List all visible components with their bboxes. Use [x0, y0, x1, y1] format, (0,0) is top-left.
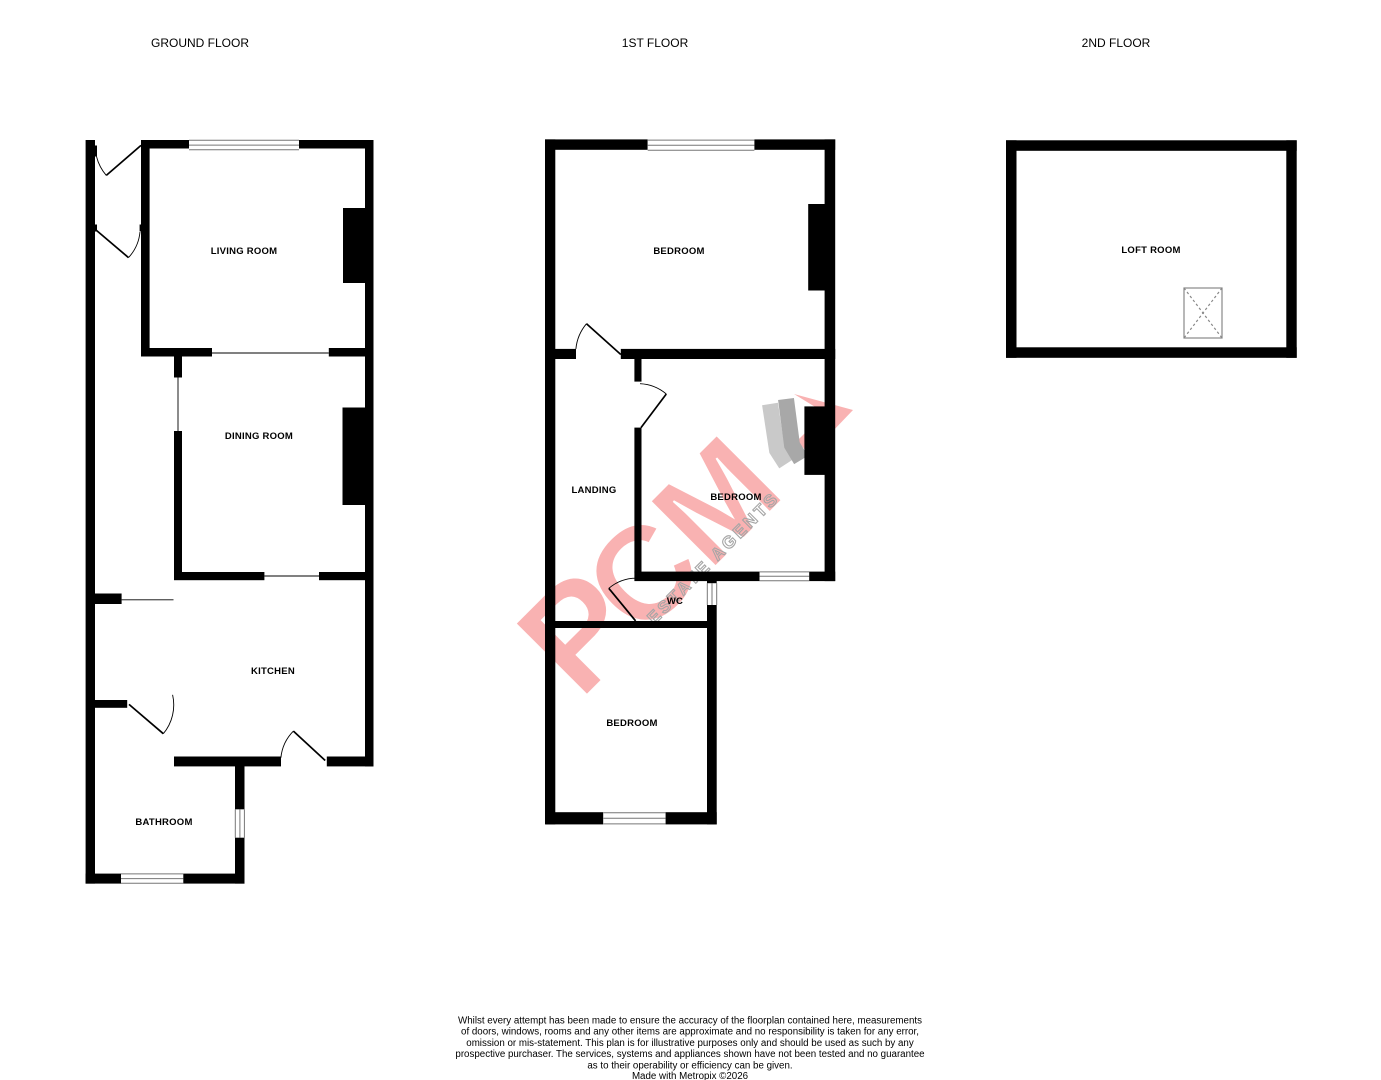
svg-text:LANDING: LANDING — [571, 485, 616, 496]
svg-text:GROUND FLOOR: GROUND FLOOR — [151, 36, 249, 50]
svg-text:of doors, windows, rooms and a: of doors, windows, rooms and any other i… — [461, 1027, 919, 1038]
svg-text:BEDROOM: BEDROOM — [606, 718, 657, 729]
svg-text:2ND FLOOR: 2ND FLOOR — [1082, 36, 1151, 50]
svg-text:omission or mis-statement. Thi: omission or mis-statement. This plan is … — [466, 1038, 914, 1049]
svg-text:as to their operability or eff: as to their operability or efficiency ca… — [587, 1060, 792, 1071]
svg-text:KITCHEN: KITCHEN — [251, 666, 295, 677]
svg-text:WC: WC — [667, 596, 683, 607]
svg-text:BEDROOM: BEDROOM — [653, 246, 704, 257]
svg-text:LIVING ROOM: LIVING ROOM — [211, 246, 278, 257]
svg-text:BATHROOM: BATHROOM — [135, 817, 192, 828]
svg-text:Whilst every attempt has been: Whilst every attempt has been made to en… — [458, 1016, 922, 1027]
svg-text:prospective purchaser. The ser: prospective purchaser. The services, sys… — [455, 1049, 924, 1060]
svg-text:DINING ROOM: DINING ROOM — [225, 431, 293, 442]
svg-text:1ST FLOOR: 1ST FLOOR — [622, 36, 689, 50]
svg-text:BEDROOM: BEDROOM — [710, 492, 761, 503]
svg-text:LOFT ROOM: LOFT ROOM — [1121, 245, 1180, 256]
svg-text:Made with Metropix ©2026: Made with Metropix ©2026 — [632, 1071, 748, 1080]
